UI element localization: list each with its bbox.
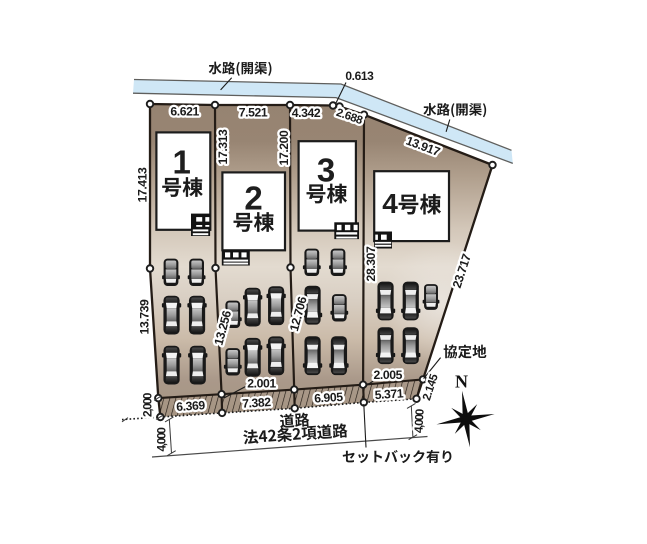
svg-text:17.413: 17.413 <box>136 167 150 202</box>
svg-text:3: 3 <box>317 152 335 189</box>
svg-text:17.313: 17.313 <box>216 129 230 164</box>
svg-text:2: 2 <box>244 180 262 217</box>
svg-text:1: 1 <box>173 144 191 181</box>
svg-text:7.382: 7.382 <box>242 395 272 411</box>
svg-text:2,000: 2,000 <box>141 392 155 417</box>
svg-text:4.342: 4.342 <box>292 106 321 120</box>
svg-text:2.005: 2.005 <box>374 368 403 382</box>
svg-text:0.613: 0.613 <box>345 69 374 83</box>
svg-text:6.905: 6.905 <box>314 390 344 406</box>
svg-text:6.369: 6.369 <box>176 398 206 414</box>
svg-text:28.307: 28.307 <box>364 246 378 281</box>
svg-text:5.371: 5.371 <box>374 386 404 402</box>
svg-text:4: 4 <box>382 188 398 219</box>
svg-text:17.200: 17.200 <box>277 130 291 165</box>
svg-text:2.001: 2.001 <box>247 376 276 390</box>
svg-text:4,000: 4,000 <box>411 408 426 433</box>
svg-text:13.739: 13.739 <box>137 299 151 334</box>
svg-text:7.521: 7.521 <box>239 105 268 119</box>
svg-text:4,000: 4,000 <box>155 427 169 452</box>
svg-text:6.621: 6.621 <box>170 104 199 118</box>
svg-text:N: N <box>455 372 468 392</box>
